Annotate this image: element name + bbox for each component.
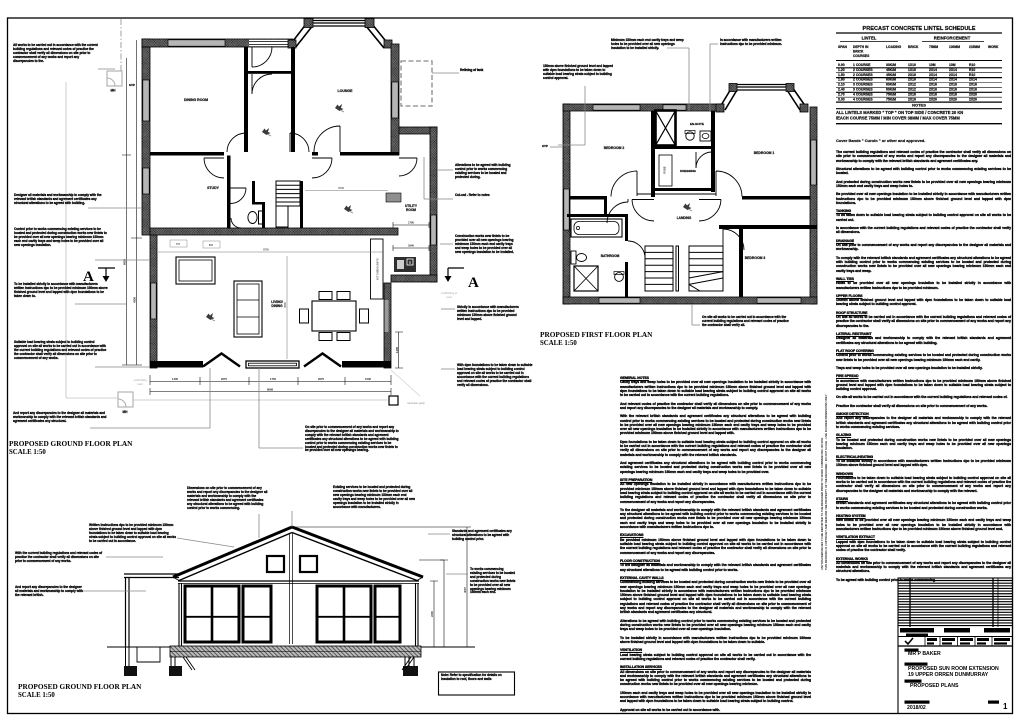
svg-text:PRECAST CONCRETE LINTEL SCHEDU: PRECAST CONCRETE LINTEL SCHEDULE <box>862 26 975 32</box>
svg-text:2X16: 2X16 <box>969 88 977 92</box>
svg-text:1400: 1400 <box>395 347 399 353</box>
svg-text:4 COURSES: 4 COURSES <box>853 97 873 101</box>
svg-text:3 COURSES: 3 COURSES <box>853 83 873 87</box>
svg-text:1 COURSE: 1 COURSE <box>853 63 871 67</box>
svg-text:rainwater gully: rainwater gully <box>407 402 425 405</box>
svg-text:2400: 2400 <box>430 611 434 617</box>
svg-text:10M: 10M <box>949 63 956 67</box>
svg-text:7046: 7046 <box>338 186 344 190</box>
svg-text:2X14: 2X14 <box>949 73 957 77</box>
svg-text:75MM: 75MM <box>929 45 938 49</box>
svg-text:60K/M: 60K/M <box>886 88 896 92</box>
svg-text:3.00: 3.00 <box>838 97 845 101</box>
svg-text:2X14: 2X14 <box>929 73 937 77</box>
svg-text:75K/M: 75K/M <box>886 97 896 101</box>
svg-text:45K/M: 45K/M <box>886 73 896 77</box>
svg-text:R10: R10 <box>969 63 975 67</box>
svg-text:2X16: 2X16 <box>969 83 977 87</box>
svg-text:LOADING: LOADING <box>886 45 902 49</box>
svg-text:60K/M: 60K/M <box>886 83 896 87</box>
svg-text:100MM: 100MM <box>949 45 960 49</box>
svg-text:1X10: 1X10 <box>908 68 916 72</box>
svg-text:BRICK: BRICK <box>853 50 864 54</box>
svg-text:2X16: 2X16 <box>949 92 957 96</box>
svg-text:SPAN: SPAN <box>838 45 848 49</box>
svg-text:ROOM: ROOM <box>406 208 416 212</box>
svg-text:2X14: 2X14 <box>929 78 937 82</box>
svg-text:2X14: 2X14 <box>949 78 957 82</box>
svg-text:1700: 1700 <box>408 221 414 225</box>
svg-text:ANY DISCREPANCIES TO BE REPORT: ANY DISCREPANCIES TO BE REPORTED TO THE … <box>820 437 824 570</box>
svg-text:DINING ROOM: DINING ROOM <box>184 98 208 102</box>
svg-text:MH: MH <box>111 89 117 93</box>
svg-text:2.40: 2.40 <box>838 88 845 92</box>
svg-text:reqd: reqd <box>137 383 143 386</box>
svg-text:BRICK: BRICK <box>908 45 919 49</box>
svg-text:MH: MH <box>123 410 129 414</box>
svg-text:75K/M: 75K/M <box>886 92 896 96</box>
svg-text:2X14: 2X14 <box>949 68 957 72</box>
svg-text:2 COURSES: 2 COURSES <box>853 73 873 77</box>
svg-text:2X14: 2X14 <box>929 68 937 72</box>
svg-text:A: A <box>468 275 479 291</box>
svg-text:60K/M: 60K/M <box>886 78 896 82</box>
svg-text:10M: 10M <box>929 63 936 67</box>
svg-text:scaffolding: scaffolding <box>133 379 147 382</box>
svg-text:STUDY: STUDY <box>207 186 220 190</box>
svg-text:R10: R10 <box>969 68 975 72</box>
svg-text:KITCHEN UNITS: KITCHEN UNITS <box>376 258 380 280</box>
svg-text:1.20: 1.20 <box>838 68 845 72</box>
svg-text:ALL LINTELS MARKED " TOP " ON: ALL LINTELS MARKED " TOP " ON TOP SIDE /… <box>836 110 963 115</box>
svg-text:1.80: 1.80 <box>838 78 845 82</box>
svg-text:REINFORCEMENT: REINFORCEMENT <box>934 36 971 41</box>
svg-text:0.90: 0.90 <box>838 63 845 67</box>
svg-text:2X20: 2X20 <box>969 92 977 96</box>
svg-text:1400: 1400 <box>172 377 178 381</box>
svg-text:2 COURSES: 2 COURSES <box>853 78 873 82</box>
svg-text:BEDROOM 3: BEDROOM 3 <box>745 256 766 260</box>
svg-text:1.50: 1.50 <box>838 73 845 77</box>
svg-text:1500: 1500 <box>365 377 371 381</box>
svg-text:2X16: 2X16 <box>908 97 916 101</box>
svg-text:2.70: 2.70 <box>838 92 845 96</box>
svg-text:2X20: 2X20 <box>969 97 977 101</box>
svg-text:3 COURSES: 3 COURSES <box>853 88 873 92</box>
svg-text:DRESSING: DRESSING <box>680 169 696 173</box>
svg-text:LINTEL: LINTEL <box>862 36 877 41</box>
svg-text:2X20: 2X20 <box>949 97 957 101</box>
svg-text:reqd: reqd <box>446 296 452 299</box>
svg-text:6950: 6950 <box>123 259 127 265</box>
svg-text:45K/M: 45K/M <box>886 68 896 72</box>
svg-text:8068: 8068 <box>267 388 273 392</box>
svg-text:2X16: 2X16 <box>929 88 937 92</box>
svg-text:BATHROOM: BATHROOM <box>601 254 620 258</box>
svg-text:Cover Bands " Curoin " or othe: Cover Bands " Curoin " or other and appr… <box>836 138 925 143</box>
svg-text:2X16: 2X16 <box>949 83 957 87</box>
svg-text:884: 884 <box>209 244 214 247</box>
svg-text:2075: 2075 <box>221 377 227 381</box>
svg-text:2X16: 2X16 <box>908 92 916 96</box>
svg-text:215MM: 215MM <box>969 45 980 49</box>
svg-text:SVP: SVP <box>542 144 548 148</box>
svg-text:30K/M: 30K/M <box>886 63 896 67</box>
svg-text:ROBE: ROBE <box>664 166 667 174</box>
svg-text:2X12: 2X12 <box>908 88 916 92</box>
svg-text:2X16: 2X16 <box>929 92 937 96</box>
svg-text:4007: 4007 <box>463 587 467 593</box>
svg-text:BEDROOM 1: BEDROOM 1 <box>754 151 775 155</box>
svg-text:EN-SUITE: EN-SUITE <box>690 122 704 126</box>
svg-text:2X10: 2X10 <box>908 73 916 77</box>
svg-text:4300: 4300 <box>133 297 137 303</box>
svg-text:2X12: 2X12 <box>908 83 916 87</box>
svg-text:2075: 2075 <box>318 377 324 381</box>
svg-text:R10: R10 <box>969 73 975 77</box>
svg-text:scaffolding pt: scaffolding pt <box>441 292 458 295</box>
svg-text:WORK: WORK <box>988 45 999 49</box>
svg-text:1750: 1750 <box>270 377 276 381</box>
svg-text:BEDROOM 2: BEDROOM 2 <box>604 146 625 150</box>
svg-text:SVP: SVP <box>129 83 135 87</box>
svg-text:2X10: 2X10 <box>908 78 916 82</box>
svg-text:1X10: 1X10 <box>908 63 916 67</box>
svg-text:4500: 4500 <box>283 302 287 308</box>
svg-text:DEPTH IN: DEPTH IN <box>853 45 869 49</box>
svg-text:2X14: 2X14 <box>969 78 977 82</box>
svg-text:4 COURSES: 4 COURSES <box>853 92 873 96</box>
svg-text:2.10: 2.10 <box>838 83 845 87</box>
svg-text:2X16: 2X16 <box>949 88 957 92</box>
svg-text:NOTES: NOTES <box>912 103 926 108</box>
svg-text:8750: 8750 <box>263 248 269 252</box>
svg-text:2X20: 2X20 <box>929 97 937 101</box>
svg-text:THIS DRAWING IS COPYRIGHT AND: THIS DRAWING IS COPYRIGHT AND REMAINS TH… <box>824 394 828 570</box>
svg-text:DINING: DINING <box>271 304 283 308</box>
svg-text:737: 737 <box>176 243 181 246</box>
svg-text:/EACH COURSE 75MM / MIN COVER: /EACH COURSE 75MM / MIN COVER 38MM / MAX… <box>836 116 960 121</box>
svg-text:2X16: 2X16 <box>929 83 937 87</box>
svg-text:LOUNGE: LOUNGE <box>338 89 354 93</box>
svg-text:1640: 1640 <box>408 244 414 248</box>
svg-text:2 COURSES: 2 COURSES <box>853 68 873 72</box>
svg-text:LANDING: LANDING <box>677 216 692 220</box>
svg-text:COURSES: COURSES <box>853 54 870 58</box>
